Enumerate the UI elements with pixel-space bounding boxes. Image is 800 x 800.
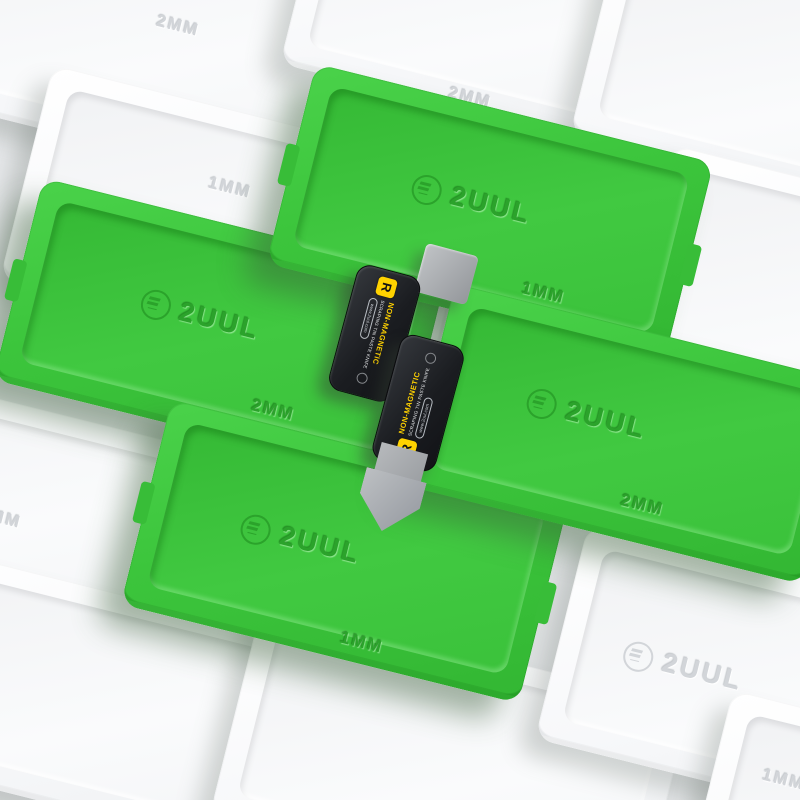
- knife-label-text: NON-MAGNETIC SCRAPING TIN PASTE KNIFE ww…: [352, 297, 396, 372]
- knife-label-text: NON-MAGNETIC SCRAPING TIN PASTE KNIFE ww…: [396, 364, 440, 439]
- hang-hole-icon: [423, 352, 436, 365]
- brand-logo-icon: [524, 386, 560, 422]
- brand-logo-icon: [137, 287, 173, 323]
- brand-logo-icon: [409, 171, 445, 207]
- product-photo-scene: 2MM 1MM 2MM 1MM 1MM 2UUL 2UUL 1MM 2UUL 2…: [0, 0, 800, 800]
- brand-logo-icon: [620, 638, 656, 674]
- brand-logo-icon: [238, 511, 274, 547]
- r-logo-icon: R: [375, 276, 398, 299]
- hang-hole-icon: [356, 371, 369, 384]
